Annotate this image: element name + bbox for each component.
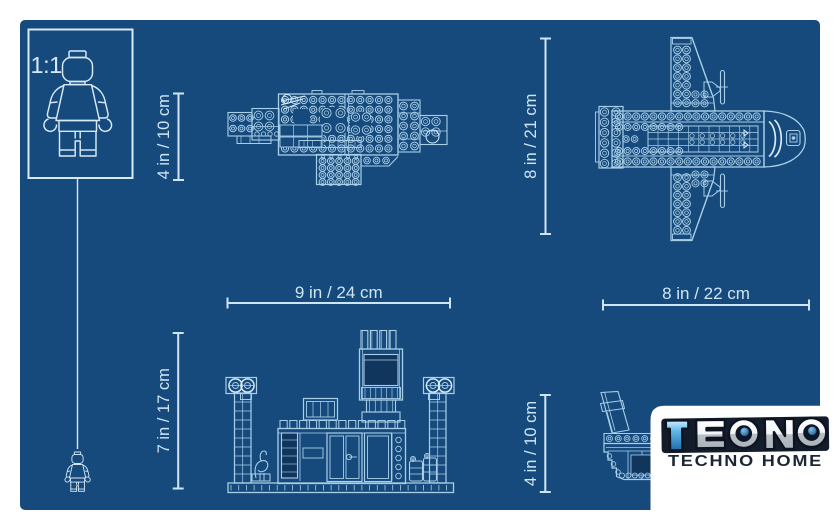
- svg-text:TECHNO HOME: TECHNO HOME: [668, 453, 823, 470]
- svg-text:8 in / 22 cm: 8 in / 22 cm: [662, 284, 750, 303]
- svg-text:1:1: 1:1: [31, 52, 62, 78]
- svg-text:8 in / 21 cm: 8 in / 21 cm: [522, 94, 540, 179]
- svg-text:4 in / 10 cm: 4 in / 10 cm: [522, 401, 540, 486]
- svg-text:7 in / 17 cm: 7 in / 17 cm: [155, 368, 173, 453]
- svg-text:9 in / 24 cm: 9 in / 24 cm: [295, 283, 383, 302]
- svg-text:4 in / 10 cm: 4 in / 10 cm: [155, 94, 173, 179]
